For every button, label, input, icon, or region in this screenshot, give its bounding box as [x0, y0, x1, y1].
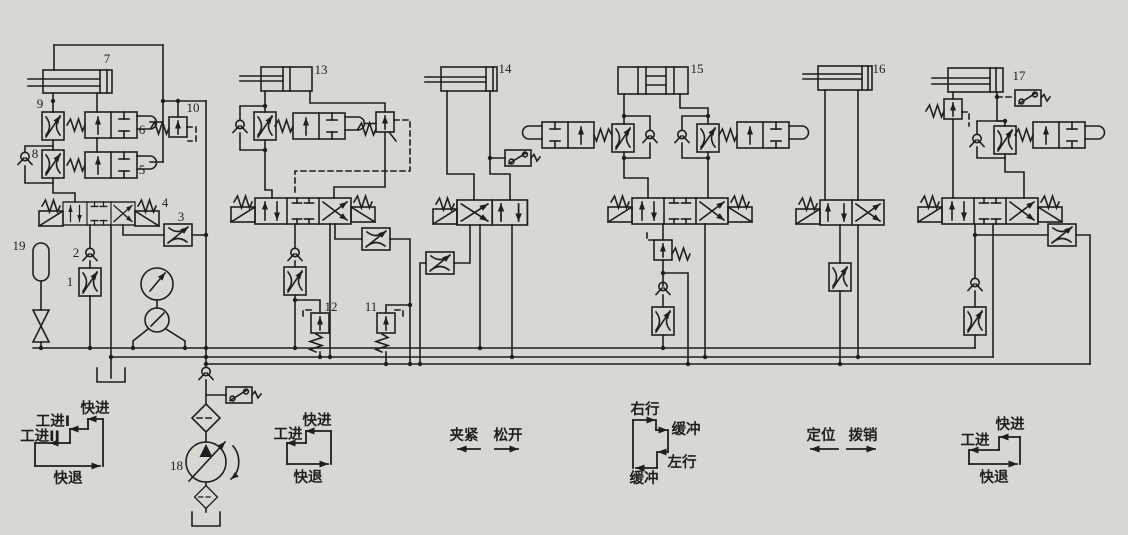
label-fast-retreat-st1: 快退: [54, 469, 83, 487]
label-4: 4: [162, 195, 169, 210]
label-9: 9: [37, 96, 44, 111]
label-position: 定位: [807, 426, 836, 444]
station-1: 7 9 8 6 5 10 4 2 1 3 19: [13, 45, 207, 382]
accumulator-19: [33, 243, 49, 348]
label-pull-pin: 拨销: [849, 426, 878, 444]
variable-pump-18: [186, 442, 239, 482]
clamp-release-labels: 夹紧 松开: [450, 426, 523, 449]
cycle-diagram-station6: 快进 工进 快退: [961, 415, 1025, 486]
pressure-switch-pump: [226, 387, 261, 403]
label-fast-retreat-st6: 快退: [980, 468, 1009, 486]
throttle-valve-feed-st2: [254, 112, 276, 140]
label-1: 1: [67, 274, 74, 289]
filter-suction: [195, 486, 218, 509]
directional-valve-st4: [608, 196, 752, 224]
cylinder-7: [28, 70, 112, 93]
cycle-diagram-station1: 快进 工进I 工进II 快退: [20, 399, 110, 487]
cylinder-16: [803, 66, 872, 90]
bus-lines: [33, 348, 1090, 364]
label-6: 6: [139, 122, 146, 137]
pilot-valve-left-st4: [523, 122, 613, 148]
label-work-feed2-st1: 工进II: [20, 428, 60, 445]
throttle-valve-9: [42, 112, 64, 140]
station-2: 13 12 11: [231, 62, 410, 364]
throttle-valve-p-st4: [652, 307, 674, 335]
cylinder-15: [618, 67, 688, 94]
label-work-feed1-st1: 工进I: [36, 413, 70, 430]
throttle-valve-3: [164, 224, 192, 246]
label-work-feed-st6: 工进: [961, 432, 990, 449]
directional-valve-4: [39, 200, 159, 226]
throttle-valve-p-st2: [284, 267, 306, 295]
cylinder-13: [240, 67, 312, 91]
label-10: 10: [187, 100, 200, 115]
station-3: 14: [420, 61, 540, 364]
relief-valve-11: [377, 313, 395, 333]
label-7: 7: [104, 51, 111, 66]
station-4: 15: [523, 61, 809, 364]
power-unit: 18: [170, 367, 261, 526]
spring-valve-11: [376, 334, 388, 352]
reducing-valve-st4: [654, 240, 672, 260]
label-work-feed-st2: 工进: [274, 426, 303, 443]
check-valve-bypass-st6: [970, 134, 984, 146]
throttle-valve-b-st2: [362, 228, 390, 250]
label-fast-advance-st2: 快进: [303, 411, 332, 429]
throttle-valve-st3: [426, 252, 454, 274]
sequence-valve-st2: [376, 112, 394, 132]
throttle-valve-feed-st6: [994, 126, 1016, 154]
directional-valve-st6: [918, 196, 1062, 224]
pilot-valve-right-st4: [719, 122, 809, 148]
tank-symbol-pump: [192, 512, 220, 526]
check-valve-p-st6: [968, 278, 982, 290]
label-14: 14: [499, 61, 513, 76]
label-fast-retreat-st2: 快退: [294, 468, 323, 486]
label-16: 16: [873, 61, 887, 76]
label-12: 12: [325, 299, 338, 314]
relief-valve-10: [169, 117, 187, 137]
label-buffer-upper: 缓冲: [672, 420, 701, 438]
filter-inlet: [192, 404, 220, 432]
label-15: 15: [691, 61, 704, 76]
hydraulic-circuit-page: 7 9 8 6 5 10 4 2 1 3 19: [0, 0, 1128, 535]
throttle-valve-8: [42, 150, 64, 178]
label-release: 松开: [494, 426, 523, 444]
position-pullpin-labels: 定位 拨销: [807, 426, 878, 449]
cycle-diagram-station4: 右行 缓冲 左行 缓冲: [630, 400, 701, 487]
label-right-travel: 右行: [631, 400, 660, 418]
check-valve-left-st4: [643, 130, 657, 142]
label-fast-advance-st6: 快进: [996, 415, 1025, 433]
pressure-switch-st6: [1015, 90, 1050, 106]
label-18: 18: [170, 458, 183, 473]
relief-valve-12: [311, 313, 329, 333]
throttle-valve-right-st4: [697, 124, 719, 152]
pressure-gauge: [133, 268, 185, 348]
throttle-valve-left-st4: [612, 124, 634, 152]
check-valve-bypass-st2: [233, 120, 247, 132]
label-13: 13: [315, 62, 328, 77]
spring-reducing-st4: [672, 248, 690, 260]
label-8: 8: [32, 146, 39, 161]
throttle-valve-branch-st6: [1048, 224, 1076, 246]
pilot-valve-st6: [1015, 122, 1105, 148]
check-valve-2: [83, 248, 97, 260]
label-3: 3: [178, 209, 185, 224]
pressure-switch-st3: [505, 150, 540, 166]
cylinder-17: [932, 68, 1003, 92]
cycle-diagram-station2: 快进 工进 快退: [274, 411, 332, 486]
hydraulic-circuit-diagram: 7 9 8 6 5 10 4 2 1 3 19: [0, 0, 1128, 535]
label-fast-advance-st1: 快进: [81, 399, 110, 417]
check-valve-bypass-8: [18, 152, 32, 164]
throttle-valve-1: [79, 268, 101, 296]
cylinder-14: [425, 67, 497, 91]
throttle-valve-p-st6: [964, 307, 986, 335]
label-buffer-lower: 缓冲: [630, 469, 659, 487]
check-valve-right-st4: [675, 130, 689, 142]
directional-valve-st2: [231, 196, 375, 224]
label-5: 5: [139, 162, 146, 177]
throttle-valve-st5: [829, 263, 851, 291]
sequence-valve-st6: [944, 99, 962, 119]
spring-valve-12: [310, 334, 322, 352]
check-valve-st2: [288, 248, 302, 260]
pilot-valve-st2: [275, 113, 365, 139]
station-6: 17: [918, 68, 1105, 364]
label-left-travel: 左行: [667, 453, 697, 471]
label-clamp: 夹紧: [450, 426, 479, 444]
directional-valve-st5: [796, 198, 884, 225]
label-11: 11: [365, 299, 378, 314]
station-5: 16: [796, 61, 886, 364]
label-2: 2: [73, 245, 80, 260]
label-17: 17: [1013, 68, 1027, 83]
spring-sequence-st6: [926, 105, 944, 117]
check-valve-pump: [199, 367, 213, 379]
directional-valve-st3: [433, 198, 527, 225]
label-19: 19: [13, 238, 26, 253]
